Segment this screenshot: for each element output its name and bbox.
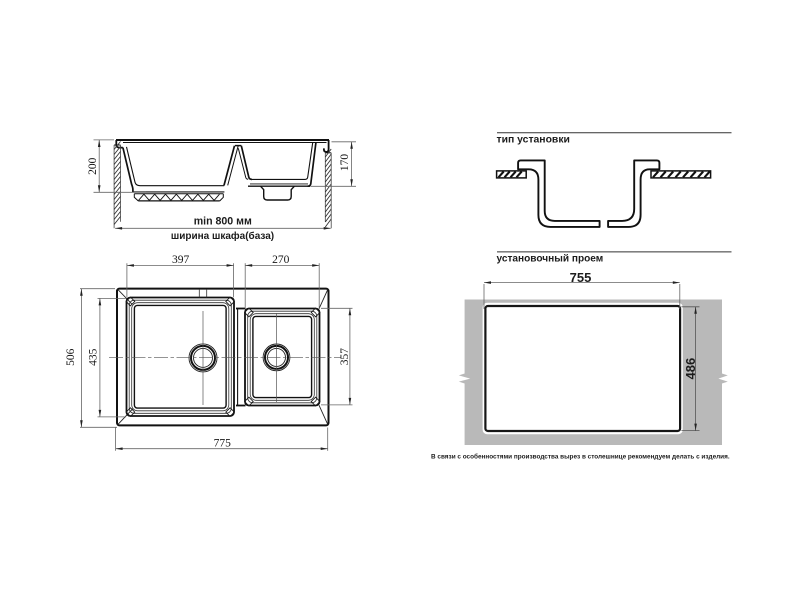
svg-text:В связи с особенностями произв: В связи с особенностями производства выр… bbox=[431, 453, 730, 461]
svg-text:486: 486 bbox=[683, 358, 698, 380]
svg-text:ширина шкафа(база): ширина шкафа(база) bbox=[171, 230, 274, 242]
svg-text:установочный проем: установочный проем bbox=[497, 253, 604, 264]
svg-text:506: 506 bbox=[65, 348, 77, 366]
svg-text:тип установки: тип установки bbox=[497, 135, 570, 146]
svg-text:397: 397 bbox=[172, 254, 190, 266]
svg-text:775: 775 bbox=[214, 437, 232, 449]
svg-text:435: 435 bbox=[88, 348, 100, 366]
svg-text:755: 755 bbox=[570, 270, 592, 285]
svg-text:min 800 мм: min 800 мм bbox=[194, 216, 252, 228]
svg-text:170: 170 bbox=[339, 154, 351, 172]
svg-text:200: 200 bbox=[87, 157, 99, 175]
svg-text:270: 270 bbox=[272, 254, 290, 266]
svg-text:357: 357 bbox=[339, 348, 351, 366]
